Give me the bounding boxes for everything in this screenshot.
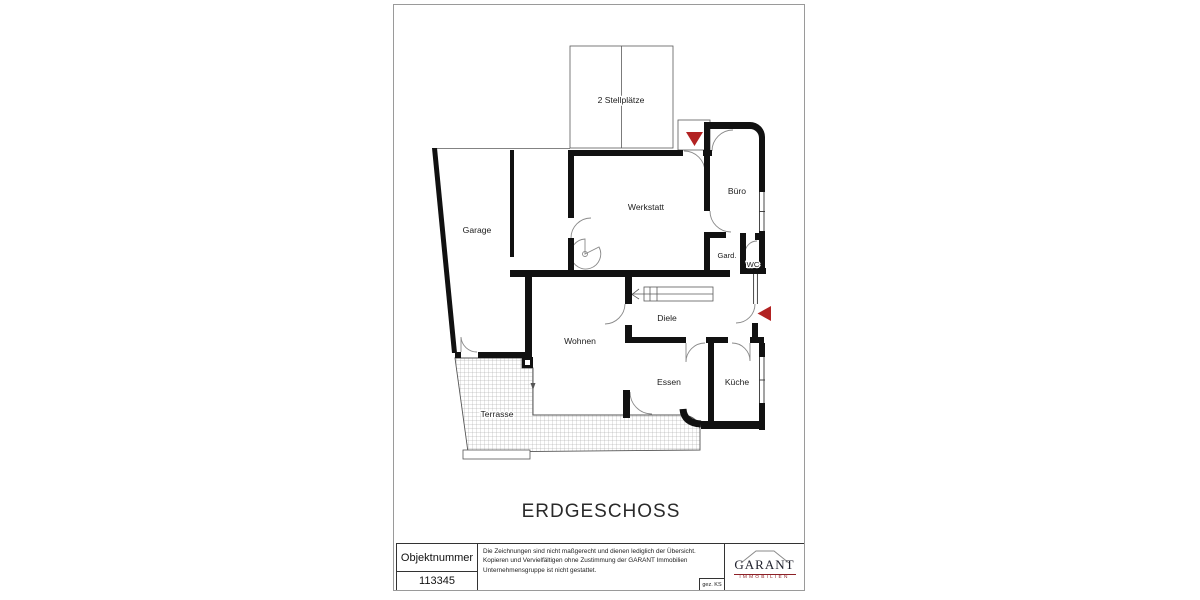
curved-wall bbox=[683, 409, 701, 424]
column-core bbox=[525, 360, 530, 365]
floor-plan-drawing: 2 Stellplätze Garage Werkstatt Büro Gard… bbox=[394, 5, 804, 543]
room-label-essen: Essen bbox=[657, 377, 681, 387]
room-label-wc: WC bbox=[747, 260, 760, 269]
disclaimer-cell: Die Zeichnungen sind nicht maßgerecht un… bbox=[478, 544, 725, 590]
object-number-cell: Objektnummer 113345 bbox=[397, 544, 478, 590]
drawn-by-box: gez. KS bbox=[699, 578, 724, 590]
disclaimer-text: Die Zeichnungen sind nicht maßgerecht un… bbox=[478, 544, 713, 575]
room-label-kueche: Küche bbox=[725, 377, 750, 387]
room-label-stellplaetze: 2 Stellplätze bbox=[598, 95, 645, 105]
logo-cell: GARANT IMMOBILIEN bbox=[725, 544, 804, 590]
object-number-value: 113345 bbox=[397, 572, 477, 590]
room-label-werkstatt: Werkstatt bbox=[628, 202, 665, 212]
floor-title: ERDGESCHOSS bbox=[522, 501, 681, 522]
room-label-garage: Garage bbox=[463, 225, 492, 235]
page-background: 2 Stellplätze Garage Werkstatt Büro Gard… bbox=[0, 0, 1200, 600]
terrace-step bbox=[463, 450, 530, 459]
entrance-marker-right-icon bbox=[758, 306, 772, 321]
entrance-marker-top-icon bbox=[686, 132, 703, 146]
room-label-garderobe: Gard. bbox=[718, 251, 737, 260]
object-number-label: Objektnummer bbox=[397, 544, 477, 572]
title-block: Objektnummer 113345 Die Zeichnungen sind… bbox=[396, 543, 804, 590]
terrace-area bbox=[455, 358, 700, 452]
room-label-diele: Diele bbox=[657, 313, 677, 323]
room-label-terrasse: Terrasse bbox=[481, 409, 514, 419]
plan-sheet: 2 Stellplätze Garage Werkstatt Büro Gard… bbox=[393, 4, 805, 591]
staircase bbox=[632, 287, 713, 301]
windows bbox=[754, 192, 765, 403]
pivot-door bbox=[571, 239, 601, 269]
room-label-buero: Büro bbox=[728, 186, 746, 196]
room-label-wohnen: Wohnen bbox=[564, 336, 596, 346]
logo-brand-text: GARANT bbox=[734, 557, 796, 575]
garant-logo: GARANT IMMOBILIEN bbox=[734, 550, 796, 584]
logo-tagline-text: IMMOBILIEN bbox=[734, 575, 796, 580]
